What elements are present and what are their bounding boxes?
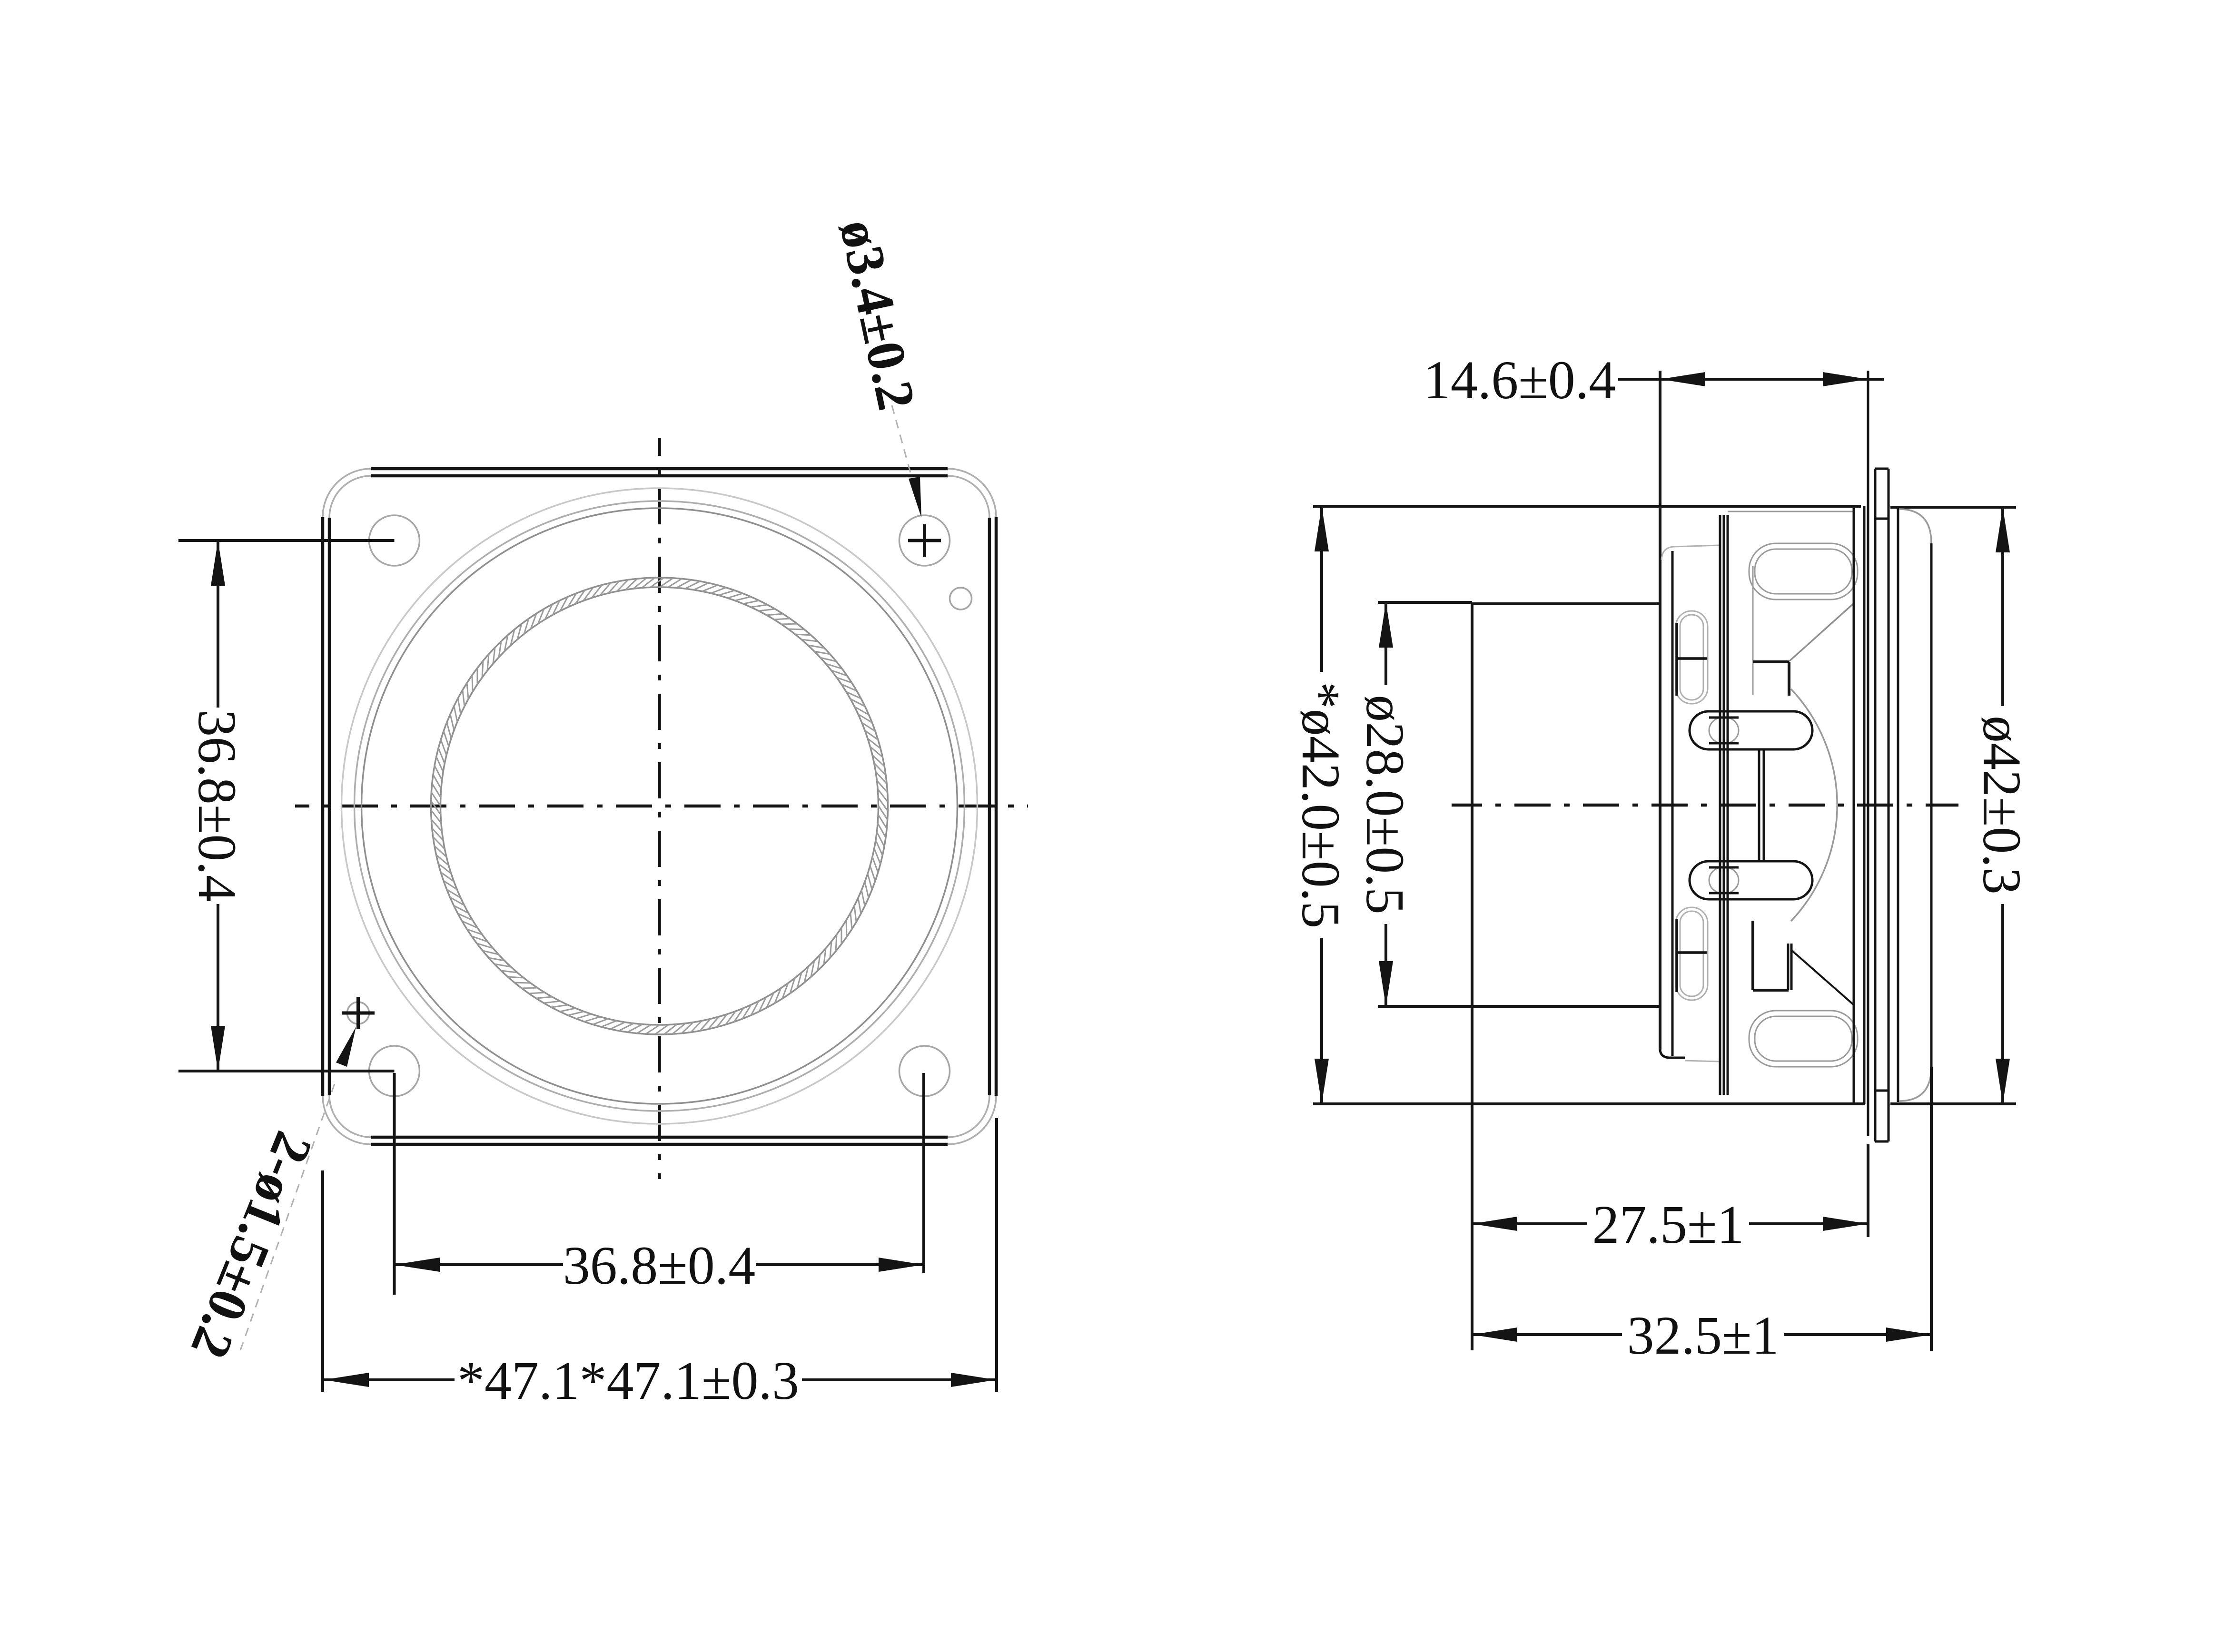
svg-text:ø42±0.3: ø42±0.3 (1972, 716, 2032, 895)
svg-text:14.6±0.4: 14.6±0.4 (1424, 350, 1616, 410)
svg-text:*ø42.0±0.5: *ø42.0±0.5 (1291, 682, 1351, 929)
svg-text:36.8±0.4: 36.8±0.4 (563, 1235, 756, 1296)
svg-text:ø28.0±0.5: ø28.0±0.5 (1355, 695, 1415, 914)
svg-text:*47.1*47.1±0.3: *47.1*47.1±0.3 (457, 1350, 799, 1411)
svg-text:36.8±0.4: 36.8±0.4 (187, 709, 247, 902)
svg-text:27.5±1: 27.5±1 (1592, 1194, 1744, 1255)
svg-text:32.5±1: 32.5±1 (1627, 1305, 1779, 1366)
